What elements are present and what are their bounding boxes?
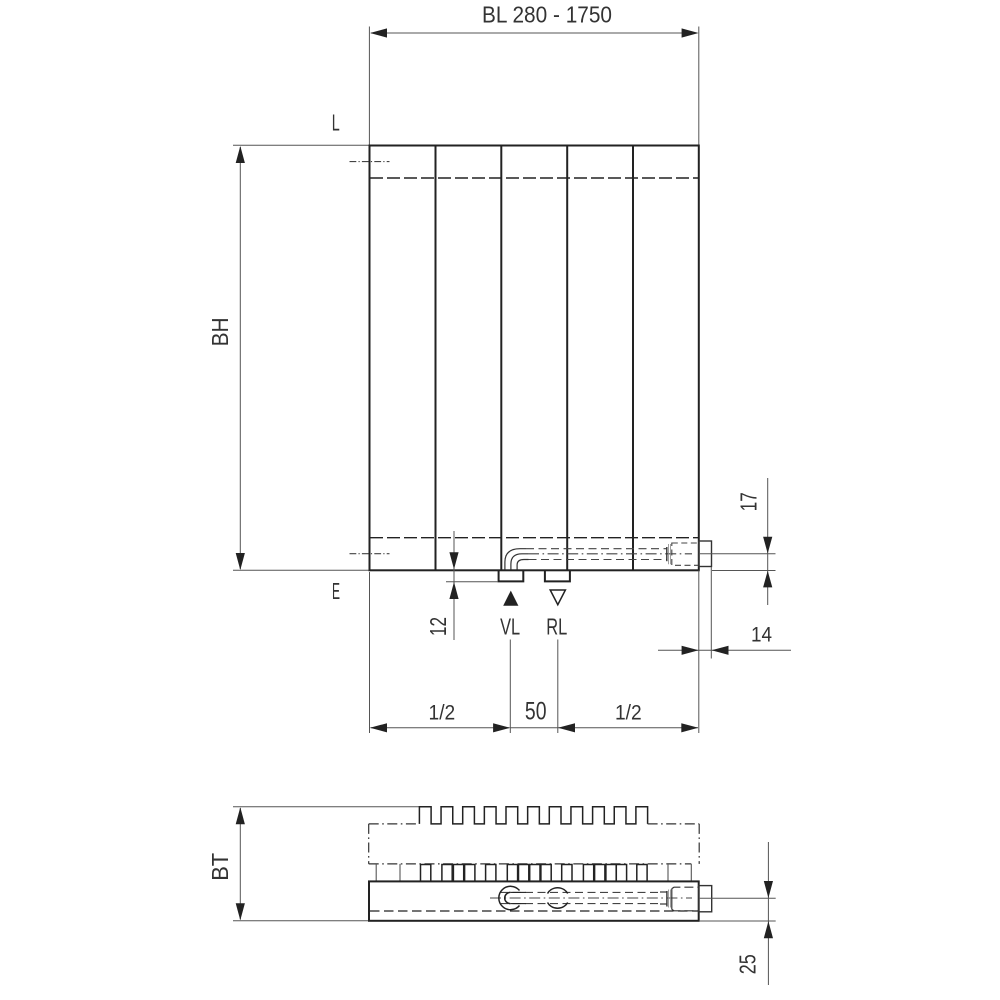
svg-text:BH: BH: [207, 317, 233, 346]
svg-text:1/2: 1/2: [429, 701, 456, 724]
svg-text:BT: BT: [207, 853, 233, 881]
svg-text:RL: RL: [546, 614, 567, 640]
svg-text:BL 280 - 1750: BL 280 - 1750: [482, 2, 612, 28]
svg-text:25: 25: [735, 954, 761, 974]
svg-text:E: E: [332, 578, 340, 604]
svg-text:L: L: [332, 110, 340, 136]
svg-text:50: 50: [525, 697, 547, 725]
svg-text:12: 12: [425, 617, 451, 636]
svg-text:1/2: 1/2: [615, 701, 642, 724]
svg-text:VL: VL: [500, 614, 520, 640]
svg-text:17: 17: [736, 492, 762, 511]
svg-text:14: 14: [751, 622, 772, 646]
